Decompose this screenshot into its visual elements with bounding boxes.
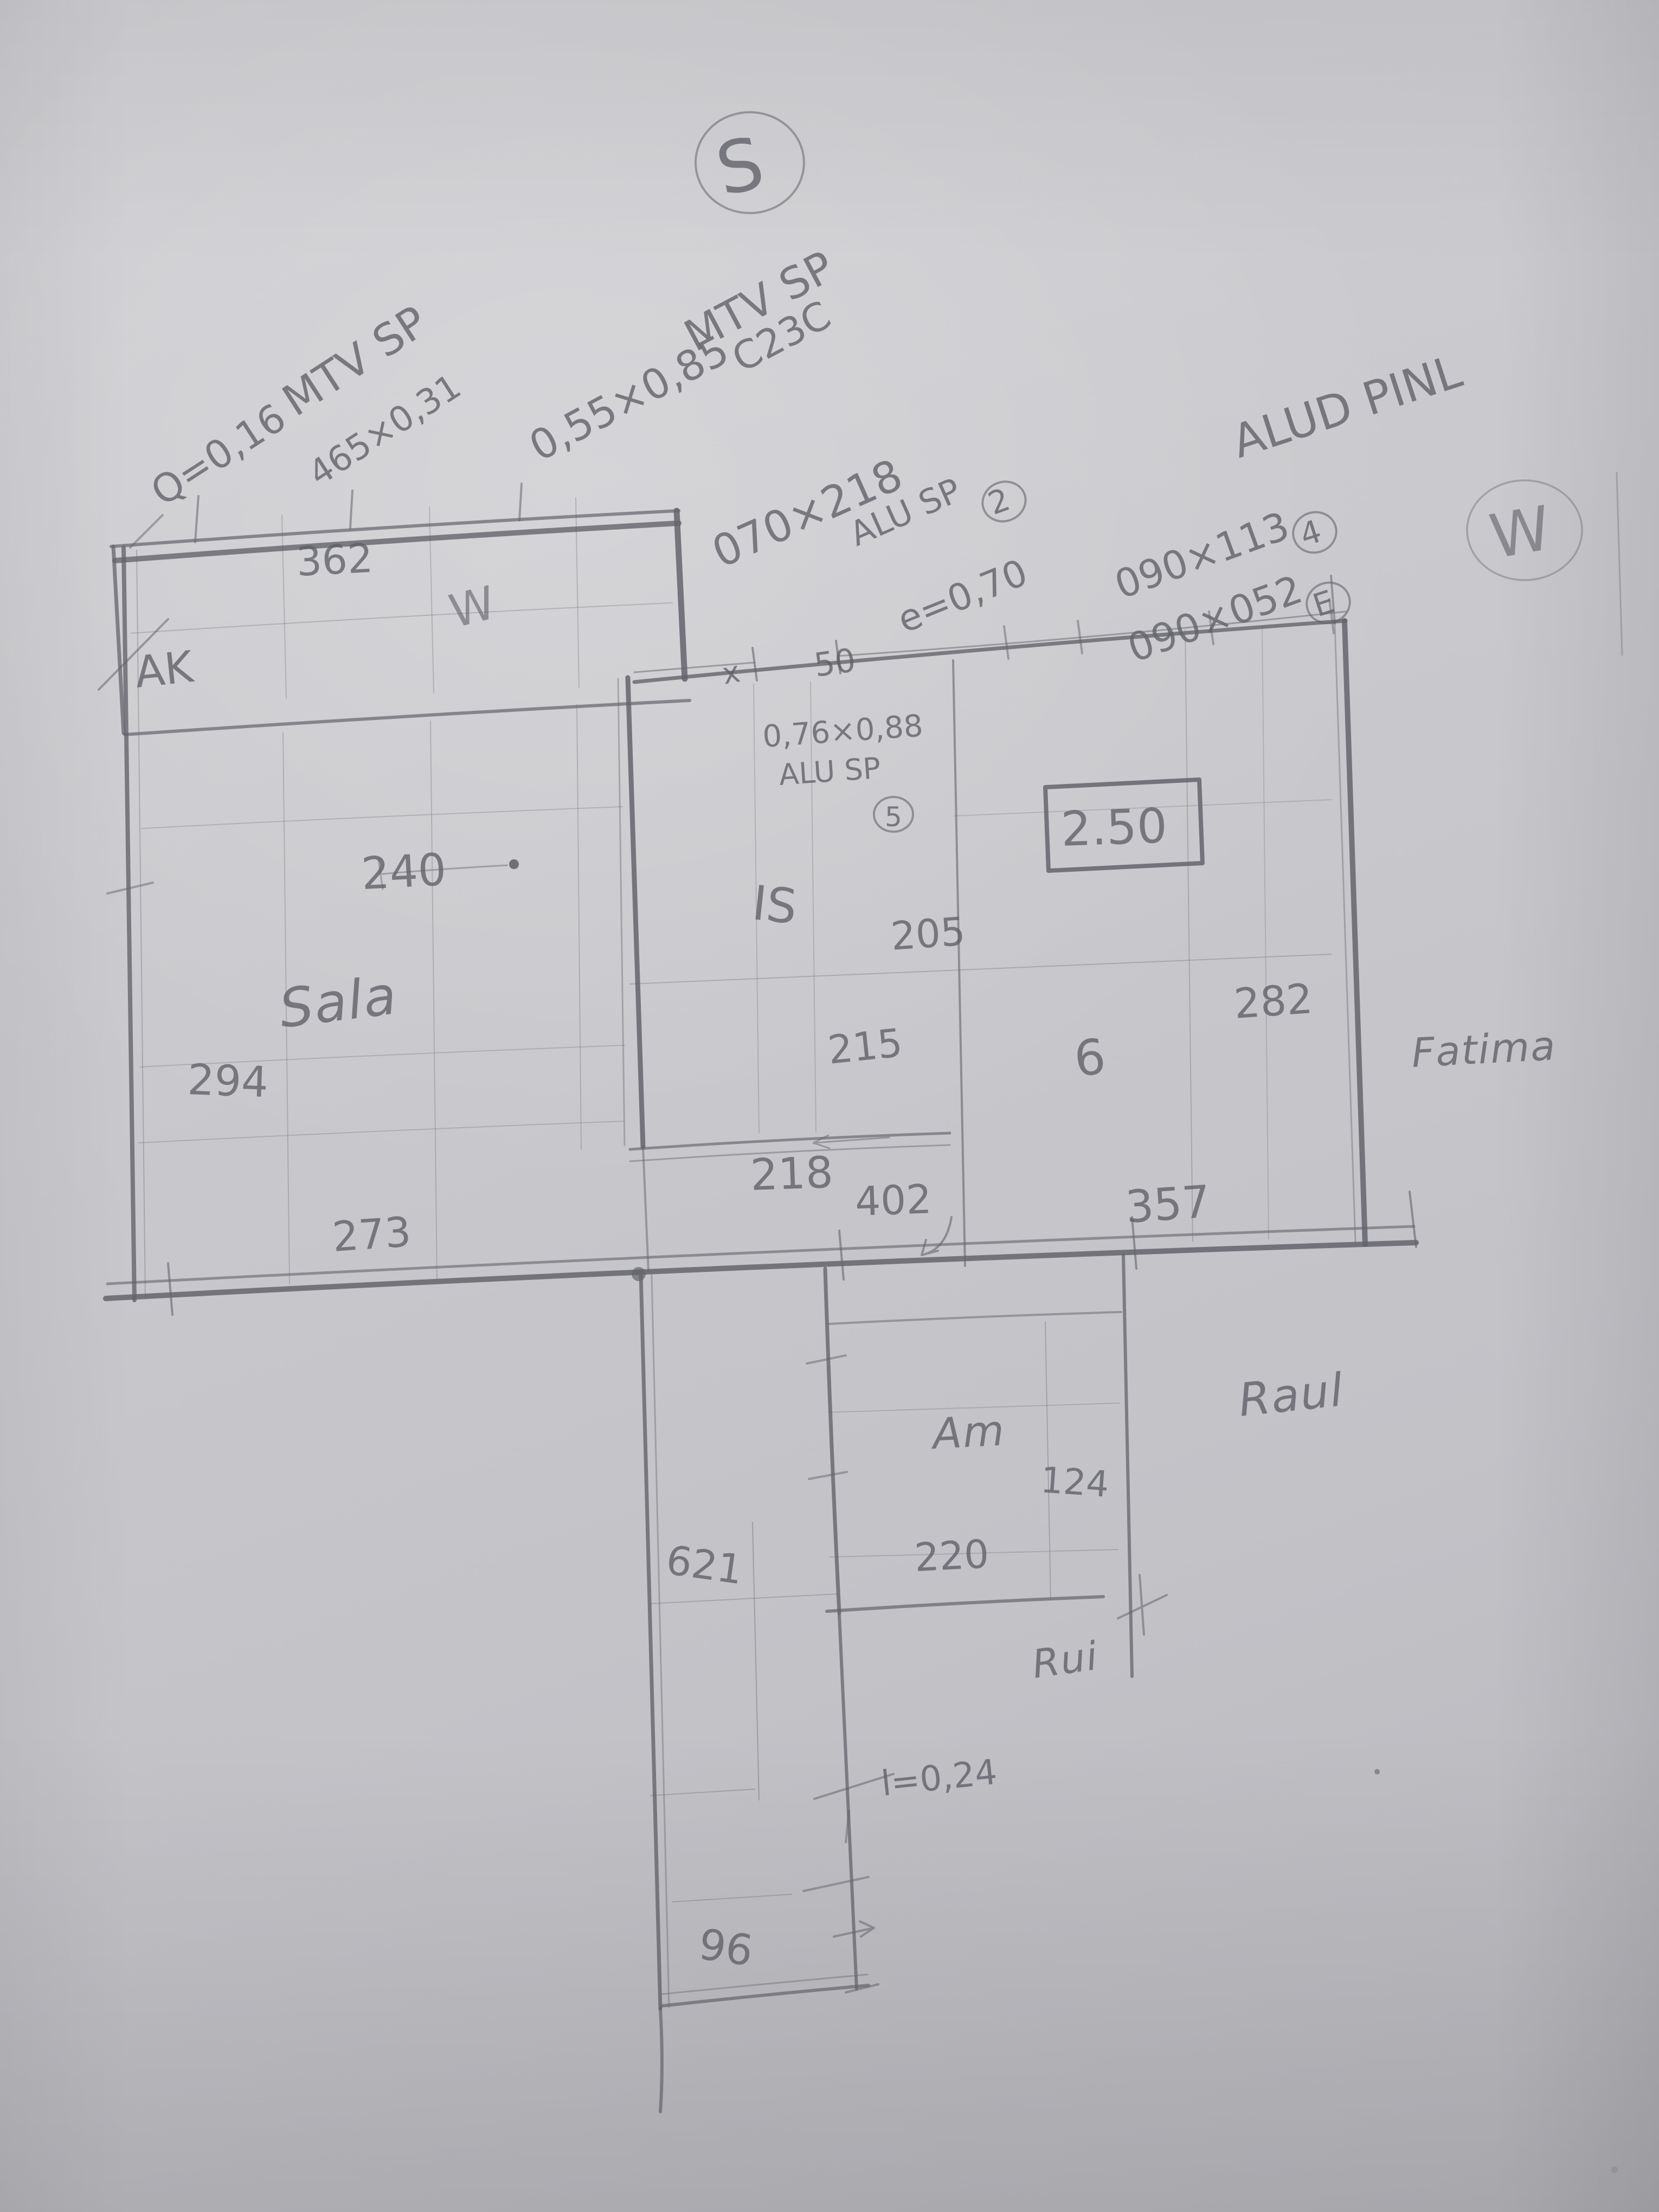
spec8-size: 0,76×0,88: [761, 708, 924, 755]
dim-220: 220: [913, 1531, 990, 1580]
name-fatima: Fatima: [1410, 1023, 1557, 1077]
room-sala-label: Sala: [276, 964, 401, 1040]
dim-402: 402: [854, 1176, 933, 1225]
dim-124: 124: [1039, 1459, 1110, 1506]
terrace-walls: [99, 484, 690, 735]
corridor-walls: [641, 1273, 893, 2112]
name-rui: Rui: [1030, 1633, 1101, 1687]
room-am-label: Am: [929, 1406, 1006, 1459]
compass-west: W: [1467, 480, 1582, 580]
dim-273: 273: [331, 1207, 413, 1261]
terrace-w-mark: W: [444, 576, 500, 638]
spec-material: ALUD PINL: [1226, 344, 1468, 468]
dim-357: 357: [1124, 1176, 1212, 1233]
spec-annotation-1: MTV SP Q=0,16 465×0,31: [143, 296, 468, 515]
dim-215: 215: [826, 1020, 904, 1073]
spec-annotation-2: MTV SP 0,55×0,85 C23C: [522, 241, 843, 471]
dim-96: 96: [696, 1920, 756, 1976]
spec8-ref: 5: [885, 801, 902, 833]
dim-218: 218: [749, 1147, 834, 1200]
spec-wall-thickness: e=0,70: [892, 551, 1034, 642]
door-width: 50: [812, 641, 858, 685]
spec-annotation-8: 0,76×0,88 ALU SP 5: [761, 708, 924, 833]
is-walls: [630, 660, 1331, 1266]
floorplan-sketch: S W MTV SP Q=0,16 465×0,31 MTV SP 0,55×0…: [0, 0, 1659, 2212]
compass-south-label: S: [709, 121, 771, 213]
room-ak-label: AK: [132, 641, 197, 698]
compass-south: S: [696, 112, 804, 213]
compass-west-label: W: [1485, 493, 1557, 573]
spec1-area: Q=0,16: [143, 395, 294, 515]
room-is-label: IS: [750, 874, 800, 935]
dim-621: 621: [663, 1537, 745, 1594]
spec-annotation-3: 070×218 ALU SP 2: [705, 449, 1031, 577]
spec2-size: 0,55×0,85: [522, 326, 737, 471]
height-boxed: 2.50: [1060, 798, 1168, 857]
name-raul: Raul: [1236, 1363, 1347, 1427]
spec8-product: ALU SP: [778, 751, 882, 792]
ref-6-mark: 6: [1071, 1028, 1108, 1088]
door-x-mark: x: [719, 654, 742, 691]
wall-note: l=0,24: [879, 1752, 999, 1804]
dim-362: 362: [295, 535, 374, 586]
dim-205: 205: [889, 909, 967, 959]
dim-240: 240: [360, 844, 447, 900]
paper-specks: [1374, 1769, 1618, 2173]
dim-294: 294: [187, 1056, 269, 1107]
right-room-lines: [1045, 626, 1269, 1242]
baseline-wall: [106, 1192, 1416, 1315]
dim-282: 282: [1232, 974, 1314, 1028]
am-room-walls: [807, 1255, 1167, 1676]
